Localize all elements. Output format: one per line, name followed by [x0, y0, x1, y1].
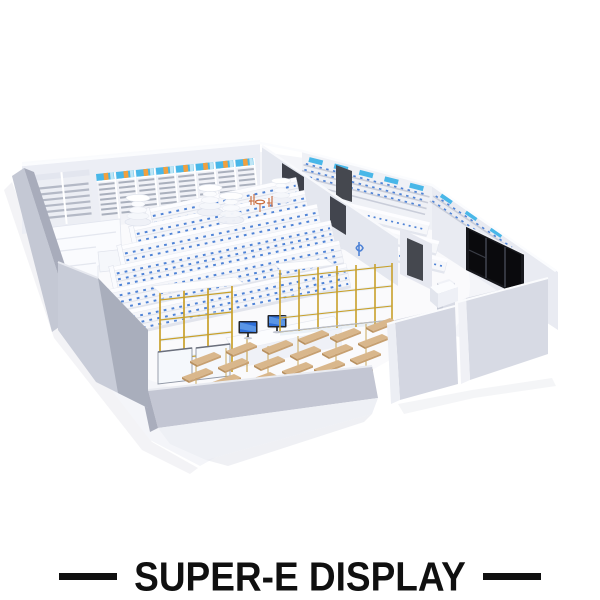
brand-footer: SUPER-E DISPLAY	[0, 552, 600, 600]
brand-dash-right	[483, 573, 541, 580]
brand-dash-left	[59, 573, 117, 580]
product-image: SUPER-E DISPLAY	[0, 0, 600, 600]
brand-name: SUPER-E DISPLAY	[134, 556, 466, 597]
dark-door-icon	[407, 238, 423, 281]
store-render	[0, 0, 600, 600]
